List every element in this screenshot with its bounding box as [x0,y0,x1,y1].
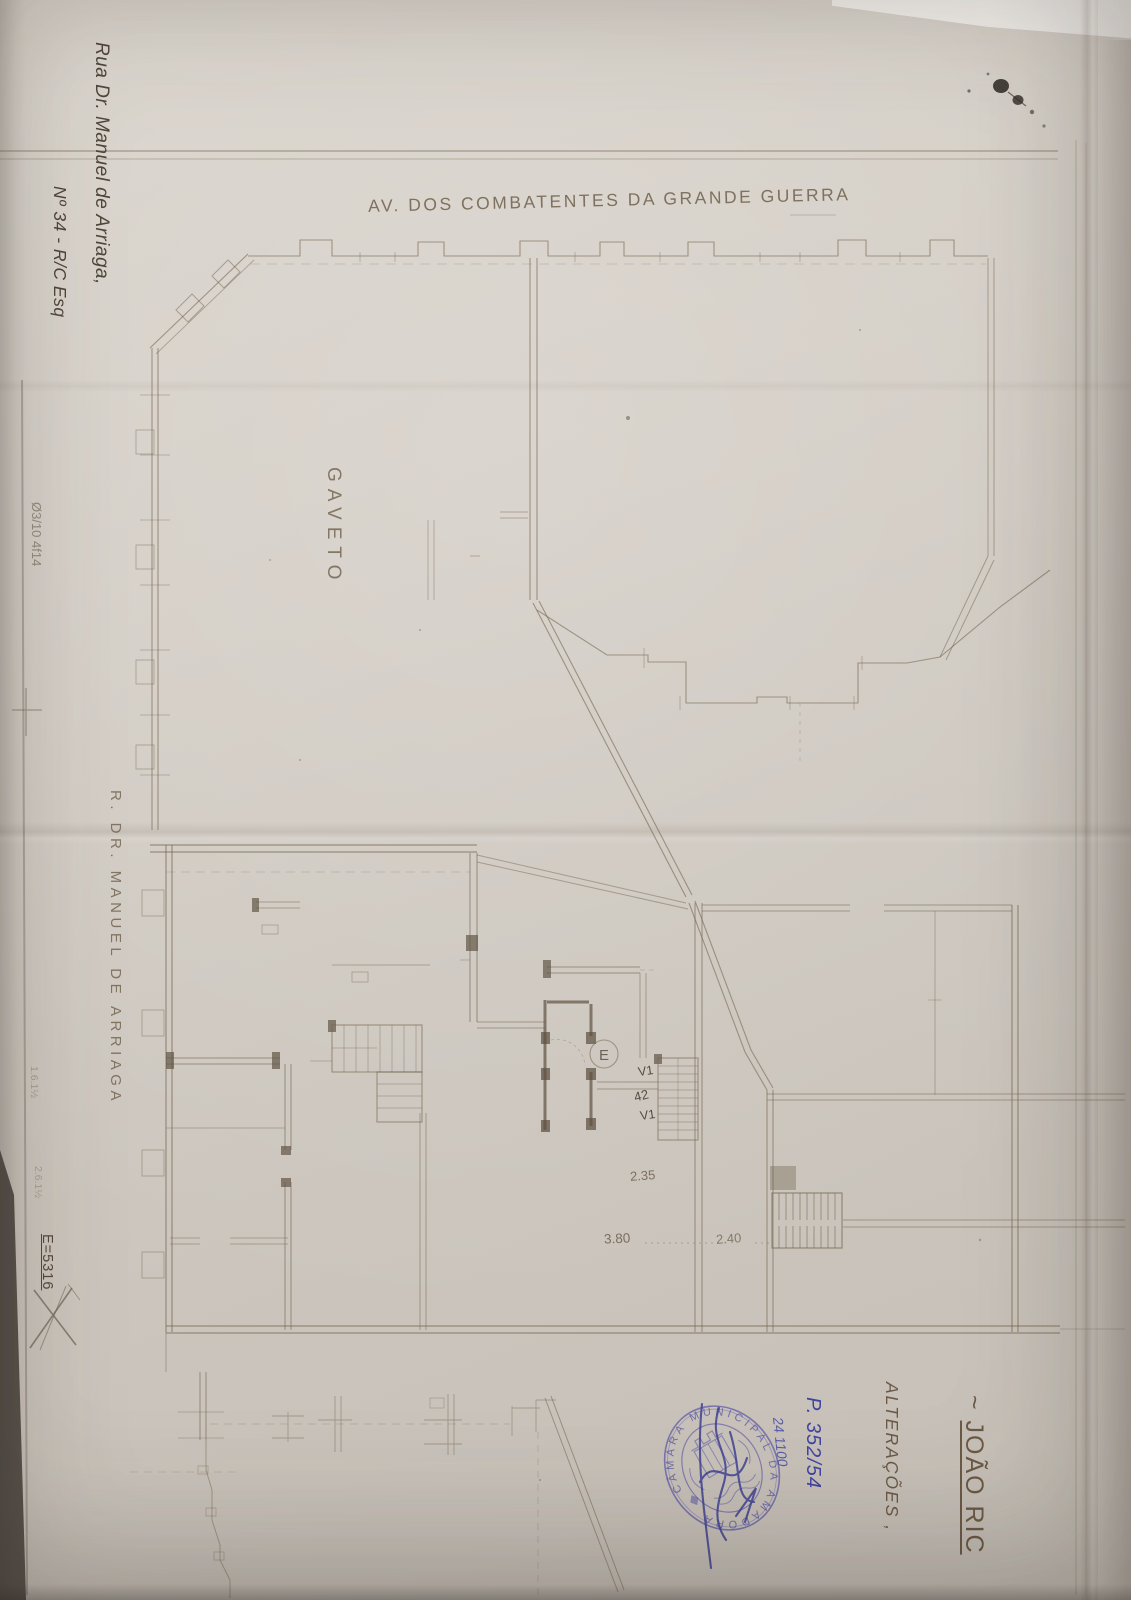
address-note-line2: Nº 34 - R/C Esq [49,186,70,318]
dimension-235: 2.35 [630,1167,656,1184]
facade-left [136,348,172,1332]
pencil-x-mark [30,1284,80,1350]
corridor [597,1082,658,1089]
process-number: P. 352/54 [801,1397,824,1489]
pencil-note: Ø3/10 4f14 [29,502,44,566]
corner-label: GAVETO [322,467,344,586]
elevator-letter: E [599,1047,609,1064]
vent-label-v1-top: V1 [637,1063,654,1079]
alterations-label: ALTERAÇÕES , [881,1382,902,1532]
project-title-tilde: ~ [960,1395,988,1421]
elevator: E [590,1040,618,1068]
project-title-name: JOÃO RIC [960,1421,988,1555]
pencil-cross-mark [12,688,42,736]
courtyard-outline [530,258,1050,762]
stair-main [332,1025,422,1122]
boundary-diagonals [477,601,773,1090]
file-mark: E=5316 [39,1234,55,1290]
vent-label-v1-bottom: V1 [639,1107,656,1123]
floor-plan-drawing: E [0,0,1131,1600]
sheet-border [0,140,1086,1595]
scanned-floor-plan-photo: E [0,0,1131,1600]
address-note-line1: Rua Dr. Manuel de Arriaga, [90,42,112,285]
bottom-edge-shadow [0,1584,1131,1600]
stair-exterior [770,1166,842,1248]
rear-facade-stubs [130,1332,624,1598]
building-walls [150,512,1125,1333]
municipal-stamp: CÂMARA MUNICIPAL DA AMADORA [642,1385,802,1552]
dimension-240: 2.40 [716,1230,742,1247]
pencil-faint-note-2: 2.6.1½ [32,1166,44,1198]
entrance-vestibule [545,1000,591,1130]
facade-corner [150,254,254,354]
entrance-jambs [541,1032,596,1132]
project-title: ~ JOÃO RIC [959,1395,988,1555]
pencil-faint-note-1: 1.6.1½ [28,1066,40,1098]
dimension-380: 3.80 [604,1230,631,1246]
table-edge [0,1150,26,1600]
facade-avenue [248,215,988,264]
street-label-left: R. DR. MANUEL DE ARRIAGA [107,790,124,1105]
stair-small [658,1058,698,1140]
ink-blots [269,73,1046,1481]
